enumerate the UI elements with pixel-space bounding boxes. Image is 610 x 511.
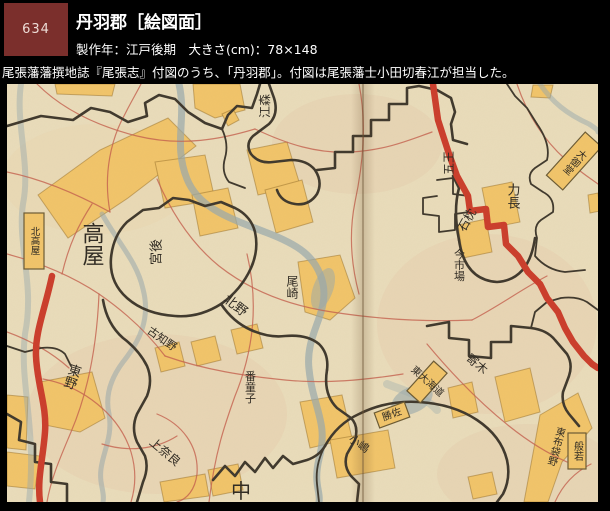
catalog-number-badge: 634 xyxy=(4,3,68,56)
historical-map-drawing: 江森五王石枕大御堂力長今市場北高屋高屋宮後尾崎北野古知野東野上奈良番童子中寄木東… xyxy=(7,84,598,502)
map-image: 江森五王石枕大御堂力長今市場北高屋高屋宮後尾崎北野古知野東野上奈良番童子中寄木東… xyxy=(7,84,598,502)
map-description: 尾張藩藩撰地誌『尾張志』付図のうち、「丹羽郡」。付図は尾張藩士小田切春江が担当し… xyxy=(2,62,608,81)
map-metadata: 製作年：江戸後期 大きさ(cm)：78×148 xyxy=(76,39,318,58)
page-title: 丹羽郡［絵図面］ xyxy=(76,8,212,33)
paper-texture xyxy=(7,84,598,502)
